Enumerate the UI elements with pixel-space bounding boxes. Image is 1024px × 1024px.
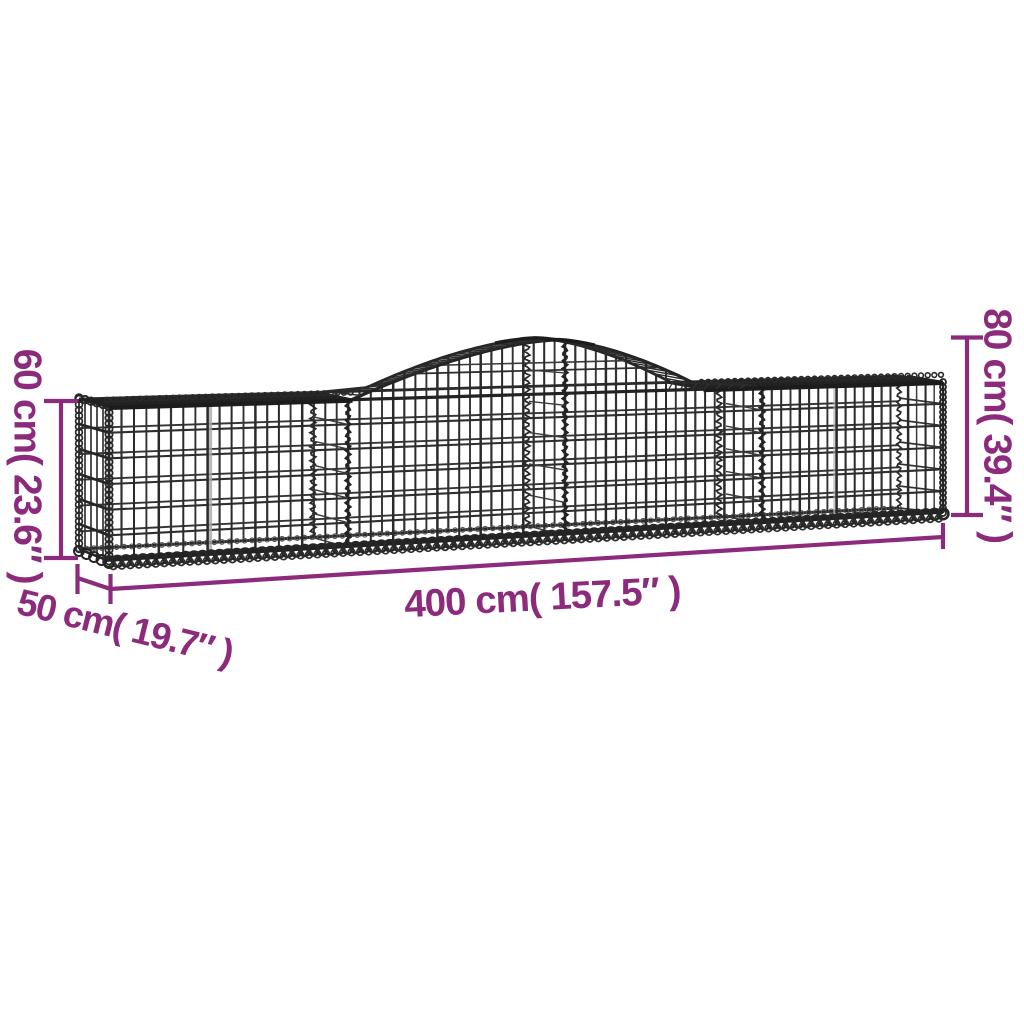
svg-text:60 cm( 23.6″ ): 60 cm( 23.6″ ) xyxy=(6,349,49,584)
svg-text:80 cm( 39.4″ ): 80 cm( 39.4″ ) xyxy=(976,308,1019,543)
